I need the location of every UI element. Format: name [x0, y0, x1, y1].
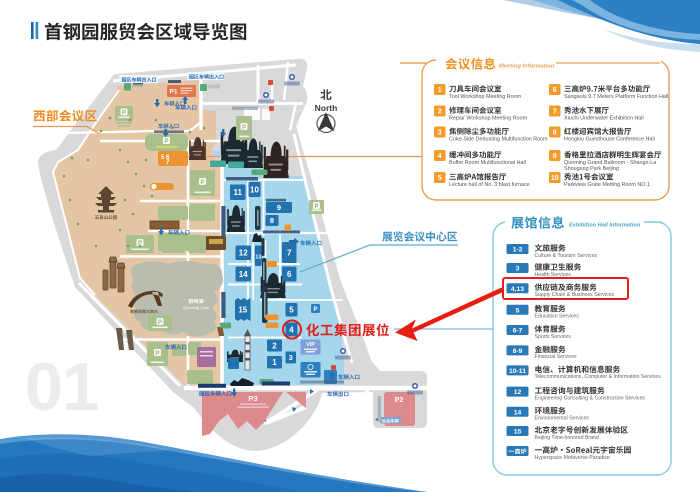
- svg-text:4: 4: [438, 153, 442, 160]
- svg-text:15: 15: [238, 306, 247, 315]
- svg-text:10: 10: [250, 185, 259, 194]
- svg-text:P: P: [200, 180, 204, 186]
- svg-text:P3: P3: [248, 394, 257, 403]
- svg-text:14: 14: [514, 409, 522, 416]
- svg-text:P: P: [122, 111, 126, 117]
- svg-text:Parkview Grate Metting Room NO: Parkview Grate Metting Room NO.1: [564, 182, 650, 188]
- svg-text:7: 7: [287, 248, 292, 257]
- svg-text:Meeting Information: Meeting Information: [499, 64, 555, 70]
- svg-text:Xiuchi Underwater Exhibition H: Xiuchi Underwater Exhibition Hall: [564, 116, 644, 122]
- svg-text:North: North: [315, 103, 338, 113]
- svg-text:8: 8: [270, 216, 274, 225]
- svg-text:VIP: VIP: [306, 342, 315, 348]
- svg-text:1: 1: [272, 358, 277, 367]
- svg-text:Engineering Consulting & Const: Engineering Consulting & Construction Se…: [535, 395, 646, 401]
- svg-text:Lecture hall of No. 3 blast fu: Lecture hall of No. 3 blast furnace: [449, 182, 530, 188]
- svg-text:14: 14: [239, 270, 248, 279]
- svg-text:P2: P2: [395, 397, 404, 404]
- svg-text:7: 7: [553, 109, 557, 116]
- svg-text:P: P: [314, 204, 318, 210]
- svg-text:11: 11: [234, 188, 243, 197]
- svg-text:Education Services: Education Services: [535, 314, 580, 320]
- svg-text:6-7: 6-7: [513, 328, 523, 335]
- svg-text:3: 3: [516, 266, 520, 273]
- svg-text:Sports Services: Sports Services: [535, 334, 572, 340]
- svg-text:2: 2: [272, 341, 277, 350]
- svg-text:Shougang Park Beijing: Shougang Park Beijing: [564, 166, 619, 172]
- svg-text:3: 3: [438, 130, 442, 137]
- svg-text:1: 1: [438, 87, 442, 94]
- svg-text:Environmental Services: Environmental Services: [535, 416, 590, 422]
- svg-text:13: 13: [255, 255, 261, 261]
- svg-text:5: 5: [289, 306, 294, 315]
- svg-text:4,13: 4,13: [511, 286, 524, 293]
- svg-text:15: 15: [514, 429, 522, 436]
- svg-text:9: 9: [553, 153, 557, 160]
- svg-text:8-9: 8-9: [513, 348, 523, 355]
- svg-text:10-11: 10-11: [509, 368, 526, 375]
- svg-text:Buffer Room Multifunctional Ha: Buffer Room Multifunctional Hall: [449, 160, 526, 166]
- svg-text:P: P: [155, 351, 159, 357]
- svg-text:P: P: [313, 307, 317, 313]
- svg-text:Tool Workshop Meeting Room: Tool Workshop Meeting Room: [449, 94, 522, 100]
- svg-text:Honglou Guesthouse Conference: Honglou Guesthouse Conference Hall: [564, 137, 655, 143]
- svg-text:4: 4: [289, 325, 294, 334]
- svg-text:Culture & Tourism Services: Culture & Tourism Services: [535, 253, 598, 259]
- svg-text:01: 01: [25, 349, 99, 425]
- svg-text:2: 2: [438, 109, 442, 116]
- svg-text:6: 6: [287, 270, 292, 279]
- svg-text:Health Services: Health Services: [535, 272, 572, 278]
- svg-text:9: 9: [277, 203, 281, 212]
- svg-text:P: P: [158, 320, 162, 326]
- svg-text:12: 12: [514, 389, 522, 396]
- svg-text:P: P: [164, 139, 168, 145]
- svg-text:P: P: [242, 125, 246, 131]
- svg-text:P1: P1: [170, 89, 178, 96]
- svg-text:8: 8: [553, 130, 557, 137]
- svg-text:1-2: 1-2: [513, 247, 523, 254]
- svg-text:5: 5: [438, 175, 442, 182]
- svg-text:Hyperspace Metaverse Paradise: Hyperspace Metaverse Paradise: [535, 455, 610, 461]
- svg-text:Repair Workshop Meeting Room: Repair Workshop Meeting Room: [449, 116, 528, 122]
- svg-text:Beijing Time-honored Brand: Beijing Time-honored Brand: [535, 435, 599, 441]
- svg-text:Coke-Side Dedusting Multifunct: Coke-Side Dedusting Multifunction Room: [449, 137, 548, 143]
- svg-text:6: 6: [553, 87, 557, 94]
- svg-text:3: 3: [289, 353, 293, 362]
- svg-text:Financial Services: Financial Services: [535, 354, 577, 360]
- svg-text:Supply Chain & Business Servic: Supply Chain & Business Services: [535, 292, 615, 298]
- svg-text:Exhibition Hall Information: Exhibition Hall Information: [569, 223, 641, 229]
- svg-text:Qunming Lake: Qunming Lake: [183, 305, 210, 310]
- svg-text:12: 12: [239, 249, 248, 258]
- svg-text:10: 10: [551, 175, 559, 182]
- svg-text:Sangaolu 9.7 Meters Platform F: Sangaolu 9.7 Meters Platform Function Ha…: [564, 94, 668, 100]
- svg-text:5: 5: [516, 307, 520, 314]
- svg-text:Telecommunications, Computer &: Telecommunications, Computer & Informati…: [535, 374, 662, 380]
